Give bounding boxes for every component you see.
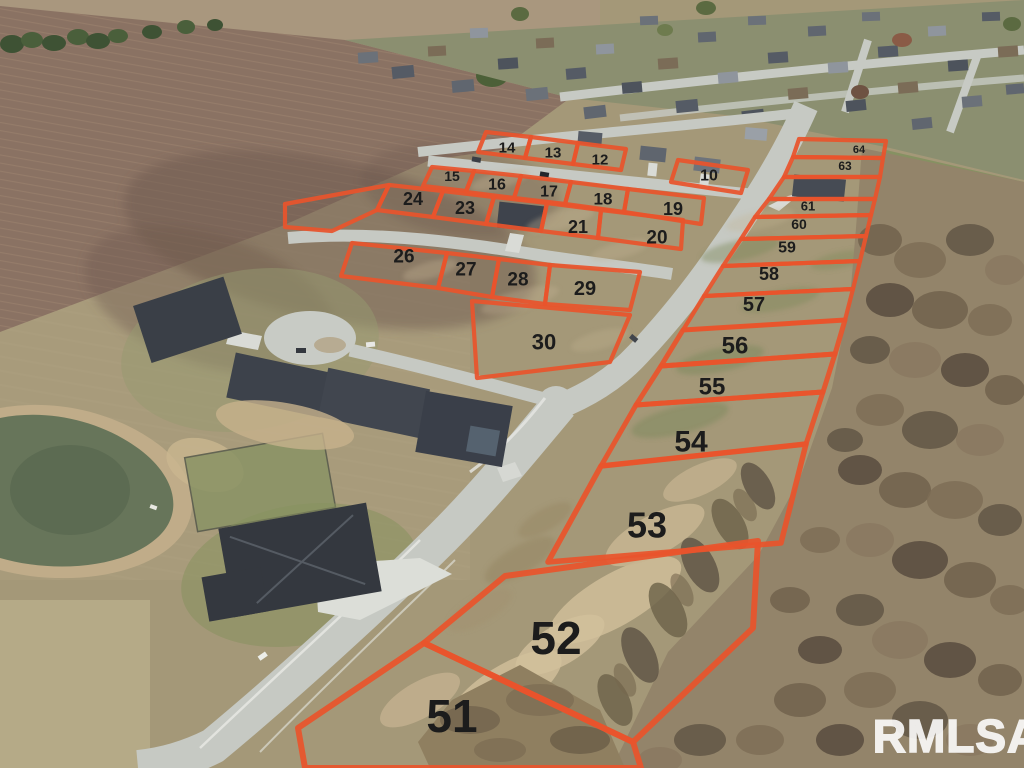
lot-label-13: 13 <box>545 145 562 162</box>
lot-label-59: 59 <box>778 240 796 257</box>
lot-label-53: 53 <box>627 505 667 546</box>
lot-label-60: 60 <box>791 216 807 232</box>
lot-label-24: 24 <box>403 189 423 209</box>
lot-label-58: 58 <box>759 264 779 284</box>
lot-label-19: 19 <box>663 199 683 219</box>
lot-label-23: 23 <box>455 198 475 218</box>
lot-label-21: 21 <box>568 217 588 237</box>
lot-label-14: 14 <box>499 140 516 157</box>
watermark-text: RMLSA <box>873 710 1024 762</box>
lot-label-56: 56 <box>722 333 749 360</box>
lot-label-17: 17 <box>540 184 558 201</box>
lot-label-30: 30 <box>532 330 556 355</box>
aerial-scene: 1413121015161718192423212026272829306463… <box>0 0 1024 768</box>
aerial-photo: 1413121015161718192423212026272829306463… <box>0 0 1024 768</box>
lot-label-57: 57 <box>743 294 765 316</box>
lot-label-28: 28 <box>507 270 528 291</box>
lot-label-51: 51 <box>426 690 477 742</box>
lot-label-26: 26 <box>393 247 414 268</box>
lot-label-10: 10 <box>700 168 718 185</box>
lot-label-63: 63 <box>838 159 852 173</box>
lot-label-18: 18 <box>594 190 613 209</box>
lot-label-15: 15 <box>444 168 460 184</box>
lot-label-64: 64 <box>853 144 866 156</box>
lot-label-27: 27 <box>455 260 476 281</box>
lot-label-20: 20 <box>646 228 667 249</box>
culdesac-dirt <box>314 337 346 353</box>
lot-label-52: 52 <box>530 612 581 664</box>
culdesac-bulb <box>264 311 356 365</box>
lot-label-29: 29 <box>574 278 596 300</box>
lot-label-16: 16 <box>488 177 506 194</box>
lot-label-61: 61 <box>801 199 815 214</box>
lot-label-12: 12 <box>592 152 609 169</box>
lot-label-54: 54 <box>674 426 708 459</box>
road-intersection <box>537 386 575 424</box>
lot-label-55: 55 <box>699 374 726 401</box>
southwest-scrub <box>0 600 150 768</box>
